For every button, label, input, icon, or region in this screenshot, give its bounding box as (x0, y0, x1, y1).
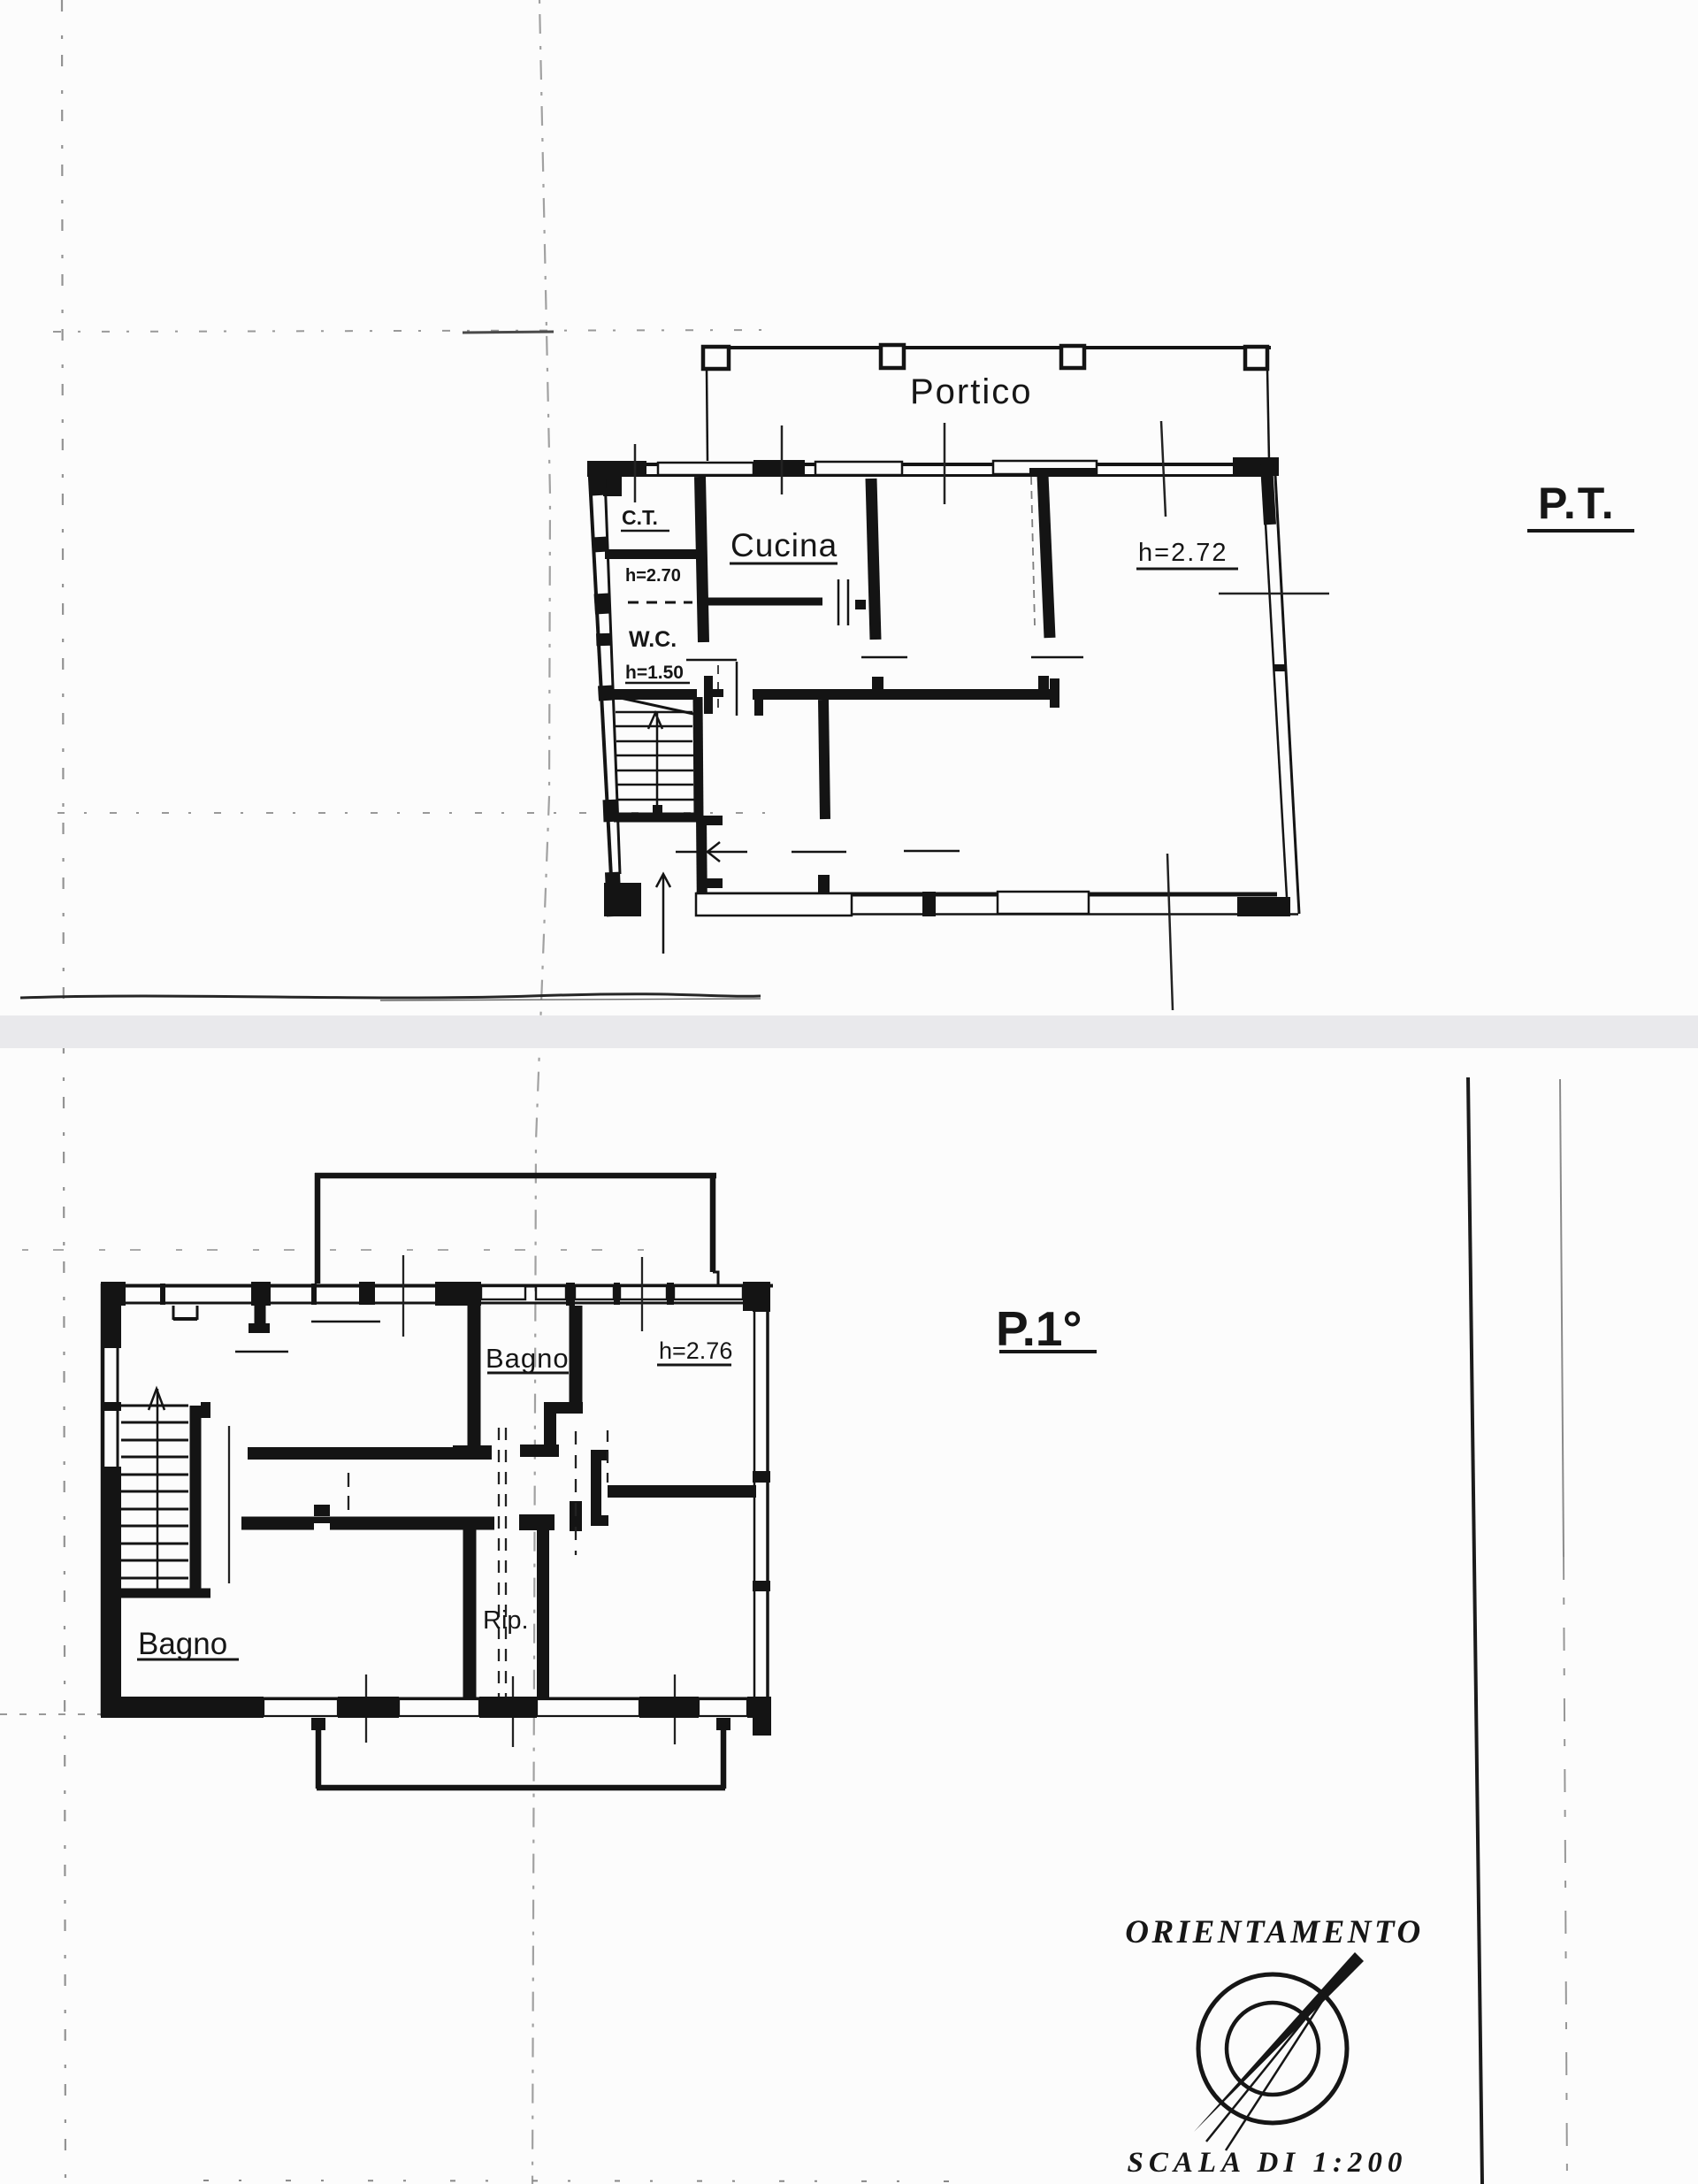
svg-text:Rip.: Rip. (483, 1606, 529, 1635)
svg-text:h=2.72: h=2.72 (1138, 539, 1228, 567)
svg-text:h=2.76: h=2.76 (659, 1337, 732, 1364)
svg-text:W.C.: W.C. (629, 627, 677, 652)
svg-text:ORIENTAMENTO: ORIENTAMENTO (1125, 1914, 1423, 1950)
svg-text:h=2.70: h=2.70 (625, 566, 681, 586)
svg-text:Bagno: Bagno (138, 1627, 227, 1661)
svg-text:Bagno: Bagno (486, 1343, 570, 1374)
svg-text:Portico: Portico (910, 372, 1033, 411)
svg-text:Cucina: Cucina (730, 527, 838, 563)
svg-text:h=1.50: h=1.50 (625, 663, 684, 683)
svg-text:SCALA DI 1:200: SCALA DI 1:200 (1128, 2147, 1408, 2179)
svg-text:C.T.: C.T. (622, 506, 658, 529)
svg-text:P.T.: P.T. (1538, 479, 1616, 528)
svg-text:P.1°: P.1° (996, 1301, 1082, 1356)
